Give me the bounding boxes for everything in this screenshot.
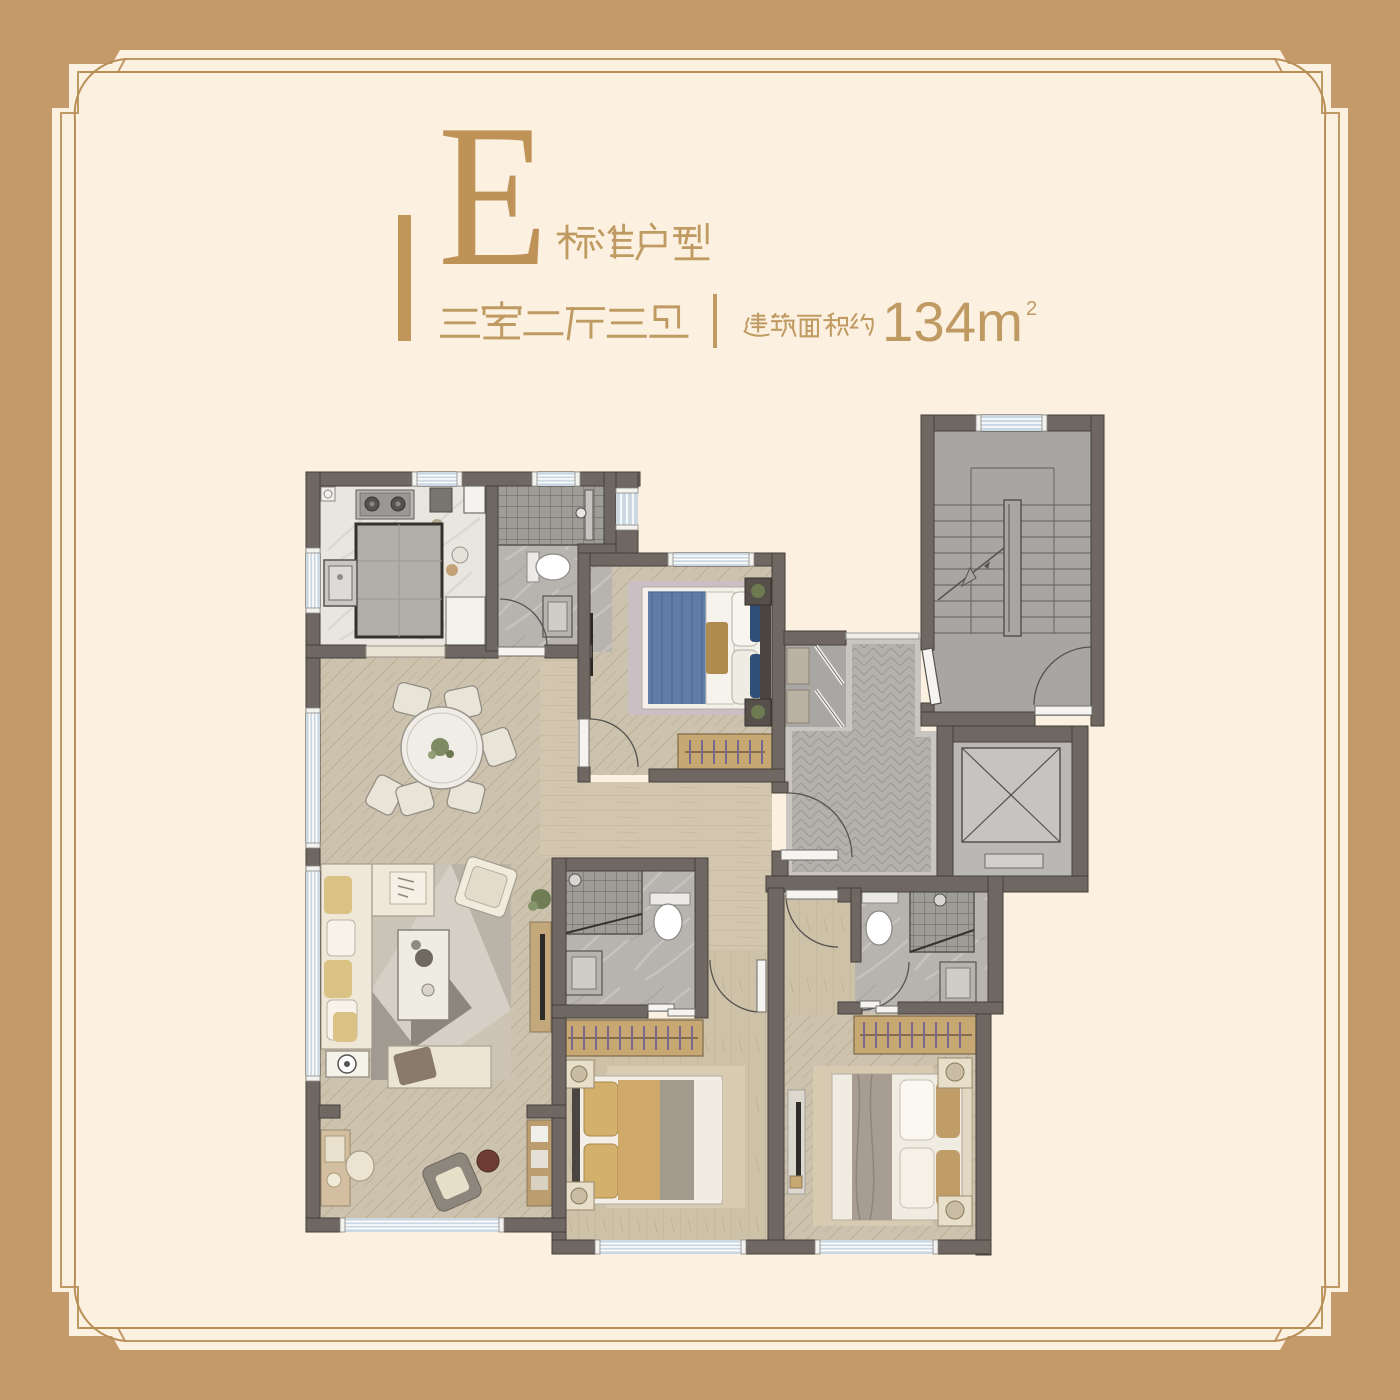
svg-text:134m: 134m — [882, 290, 1023, 353]
svg-text:E: E — [438, 83, 548, 309]
svg-text:2: 2 — [1026, 298, 1037, 320]
